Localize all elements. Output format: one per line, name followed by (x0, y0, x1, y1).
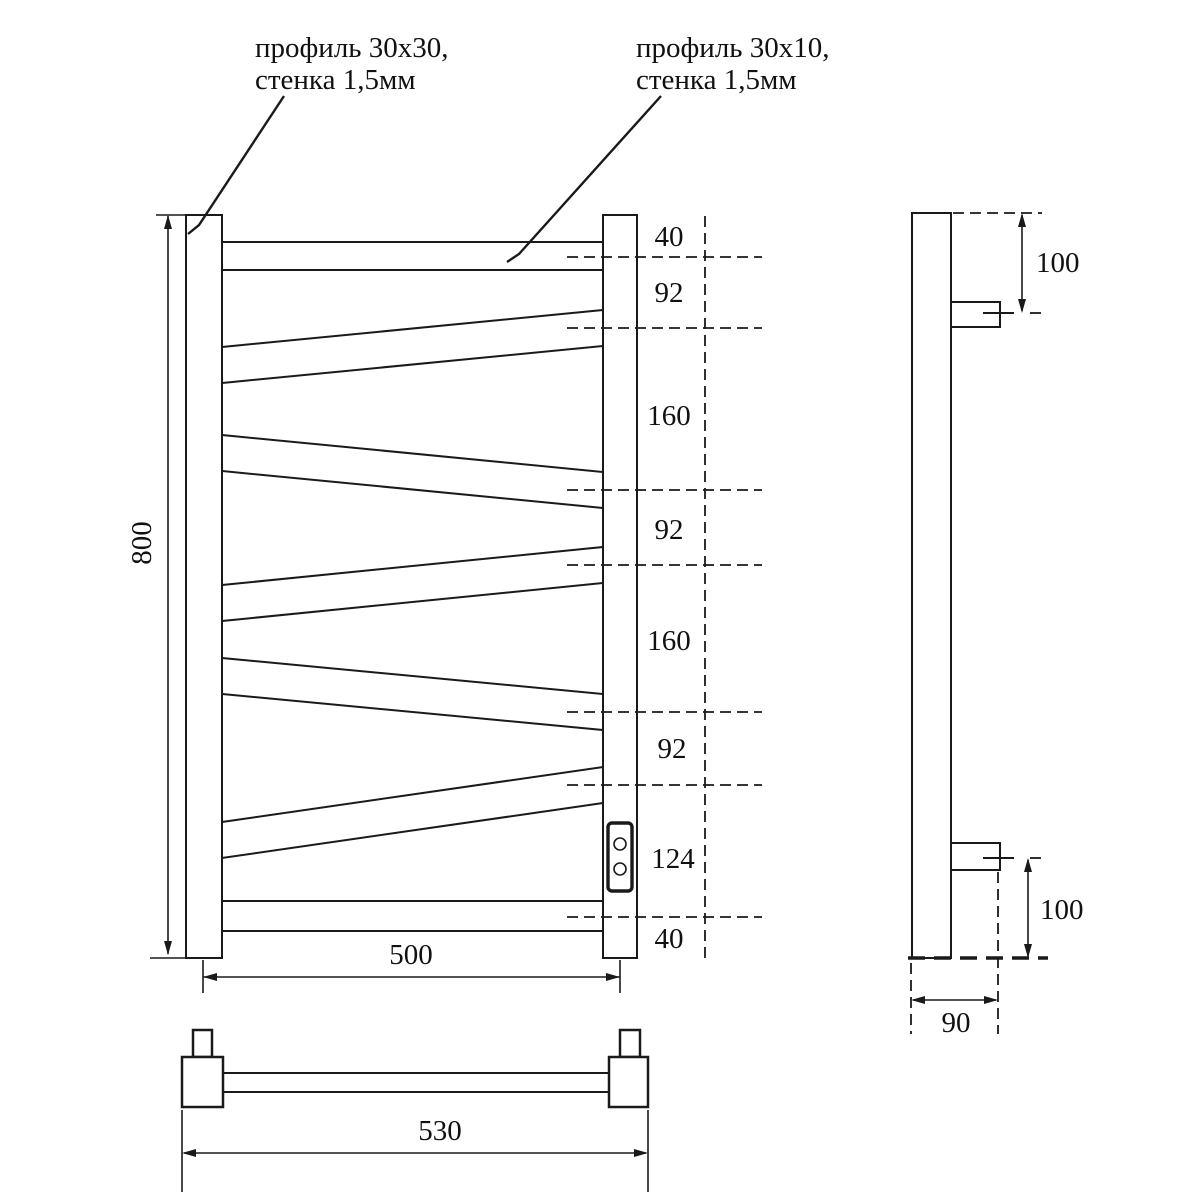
callout-right-line2: стенка 1,5мм (636, 64, 797, 96)
dim-bottom-width-label: 530 (418, 1115, 462, 1147)
callout-left-line1: профиль 30x30, (255, 32, 449, 64)
side-post (912, 213, 951, 958)
callouts: профиль 30x30, стенка 1,5мм профиль 30x1… (188, 32, 830, 262)
bottom-stub-right (620, 1030, 640, 1057)
dimension-side-top-offset: 100 (1018, 213, 1080, 313)
dim-height-label: 800 (126, 521, 158, 565)
dimension-width: 500 (203, 939, 620, 993)
callout-right-line1: профиль 30x10, (636, 32, 830, 64)
rung-bottom (222, 901, 603, 931)
bottom-view: 530 (182, 1030, 648, 1192)
switch-button-bottom (614, 863, 626, 875)
rung-diagonal-3 (222, 547, 603, 621)
side-bracket-bottom (951, 843, 1000, 870)
dim-side-top-label: 100 (1036, 247, 1080, 279)
rung-top (222, 242, 603, 270)
dim-segment-4: 160 (647, 625, 691, 657)
segment-dimensions: 40 92 160 92 160 92 124 40 (647, 221, 695, 955)
side-view: 100 100 90 (908, 213, 1084, 1039)
dim-width-label: 500 (389, 939, 433, 971)
dim-segment-0: 40 (655, 221, 684, 253)
left-post (186, 215, 222, 958)
dim-segment-2: 160 (647, 400, 691, 432)
switch-panel (608, 823, 632, 891)
bottom-block-left (182, 1057, 223, 1107)
dim-segment-1: 92 (655, 277, 684, 309)
rung-diagonal-2 (222, 435, 603, 508)
callout-left-line2: стенка 1,5мм (255, 64, 416, 96)
dimension-bottom-width: 530 (182, 1110, 648, 1192)
switch-button-top (614, 838, 626, 850)
dim-segment-6: 124 (651, 843, 695, 875)
dim-side-depth-label: 90 (942, 1007, 971, 1039)
switch-body (608, 823, 632, 891)
bottom-stub-left (193, 1030, 212, 1057)
rung-diagonal-4 (222, 658, 603, 730)
callout-left-leader (188, 96, 284, 234)
rung-diagonal-1 (222, 310, 603, 383)
front-view: 40 92 160 92 160 92 124 40 800 500 (126, 215, 762, 993)
bottom-block-right (609, 1057, 648, 1107)
dim-segment-3: 92 (655, 514, 684, 546)
side-bracket-top (951, 302, 1000, 327)
rung-diagonal-5 (222, 767, 603, 858)
dim-segment-7: 40 (655, 923, 684, 955)
dim-side-bottom-label: 100 (1040, 894, 1084, 926)
dimension-side-bottom-offset: 100 (1024, 858, 1084, 958)
technical-drawing: 40 92 160 92 160 92 124 40 800 500 (0, 0, 1200, 1200)
bottom-crossbar (223, 1073, 609, 1092)
dim-segment-5: 92 (658, 733, 687, 765)
dimension-height: 800 (126, 215, 186, 958)
